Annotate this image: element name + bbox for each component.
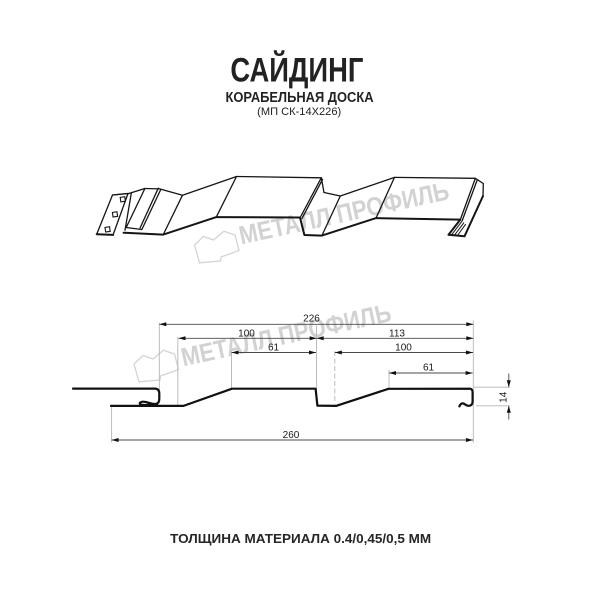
- svg-text:61: 61: [423, 363, 435, 374]
- svg-text:226: 226: [303, 314, 320, 325]
- svg-text:100: 100: [395, 343, 412, 354]
- svg-text:14: 14: [498, 391, 509, 403]
- svg-text:113: 113: [389, 328, 405, 339]
- svg-text:ТОЛЩИНА МАТЕРИАЛА 0.4/0,45/0,5: ТОЛЩИНА МАТЕРИАЛА 0.4/0,45/0,5 ММ: [170, 532, 431, 546]
- svg-text:61: 61: [268, 343, 280, 354]
- svg-text:260: 260: [283, 430, 300, 441]
- svg-text:САЙДИНГ: САЙДИНГ: [230, 50, 363, 90]
- svg-text:(МП СК-14Х226): (МП СК-14Х226): [257, 106, 341, 118]
- svg-text:100: 100: [238, 328, 255, 339]
- svg-text:КОРАБЕЛЬНАЯ ДОСКА: КОРАБЕЛЬНАЯ ДОСКА: [226, 89, 374, 106]
